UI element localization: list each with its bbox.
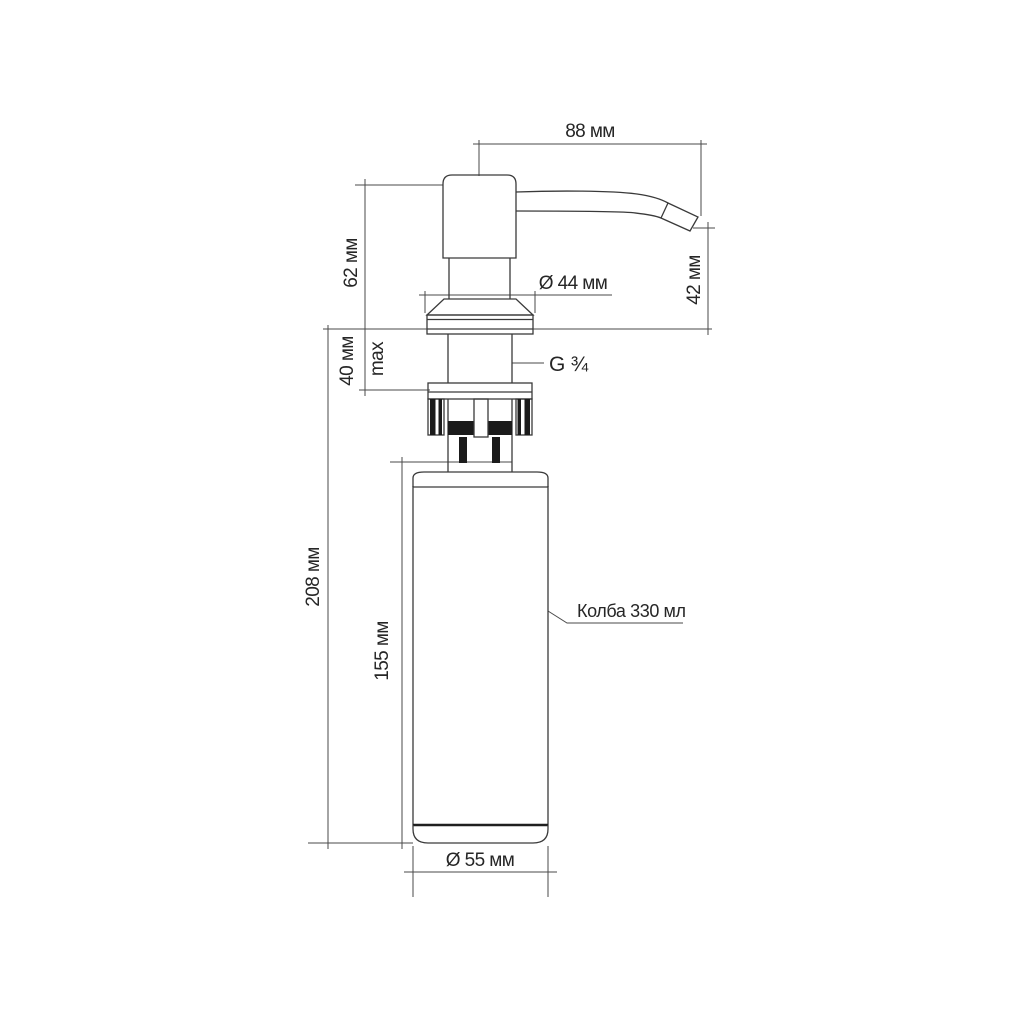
technical-drawing-page: 88 мм 42 мм 62 мм 40 мм max 208 мм 155 м… xyxy=(0,0,1024,1024)
locknut-band xyxy=(448,421,474,435)
dim-mount-thickness: 40 мм max xyxy=(337,336,430,390)
locknut xyxy=(428,399,532,472)
dim-spout-reach-label: 88 мм xyxy=(565,121,615,142)
thread-body xyxy=(448,334,512,383)
flange-cone xyxy=(427,299,533,315)
dim-under-counter: 208 мм xyxy=(303,325,328,849)
dim-mount-thickness-label: 40 мм xyxy=(337,336,358,386)
tube-bar xyxy=(492,437,500,463)
locknut-slot xyxy=(525,399,531,435)
dim-bottle-diameter: Ø 55 мм xyxy=(308,843,557,897)
pump-head xyxy=(443,175,516,258)
bottle-capacity-label: Колба 330 мл xyxy=(577,601,686,621)
dim-outlet-height: 42 мм xyxy=(684,222,715,335)
pump-neck xyxy=(449,258,510,299)
flange xyxy=(427,299,533,334)
locknut-slot xyxy=(518,399,522,435)
pump-tube xyxy=(474,399,488,437)
dim-bottle-height-label: 155 мм xyxy=(372,621,393,681)
dim-flange-diameter-label: Ø 44 мм xyxy=(539,273,607,294)
bottle-capacity-callout: Колба 330 мл xyxy=(548,601,686,623)
dispenser-drawing: 88 мм 42 мм 62 мм 40 мм max 208 мм 155 м… xyxy=(0,0,1024,1024)
dim-outlet-height-label: 42 мм xyxy=(684,255,705,305)
dim-flange-diameter: Ø 44 мм xyxy=(419,273,612,313)
locknut-slot xyxy=(439,399,443,435)
thread-size-callout: G ¾ xyxy=(512,353,589,376)
dim-spout-reach: 88 мм xyxy=(473,121,707,216)
spout xyxy=(516,191,698,231)
dim-bottle-height: 155 мм xyxy=(372,457,512,849)
spout-nozzle xyxy=(661,203,698,231)
tube-bar xyxy=(459,437,467,463)
dim-under-counter-label: 208 мм xyxy=(303,547,324,607)
flange-disc xyxy=(427,315,533,334)
locknut-band xyxy=(488,421,512,435)
mounting-plate xyxy=(428,383,532,399)
dim-pump-height-label: 62 мм xyxy=(341,238,362,288)
locknut-slot xyxy=(430,399,436,435)
supply-tube xyxy=(459,437,500,463)
dim-bottle-diameter-label: Ø 55 мм xyxy=(446,850,514,871)
bottle xyxy=(413,472,548,843)
dim-mount-thickness-max-label: max xyxy=(367,341,388,376)
thread-size-label: G ¾ xyxy=(549,353,589,376)
